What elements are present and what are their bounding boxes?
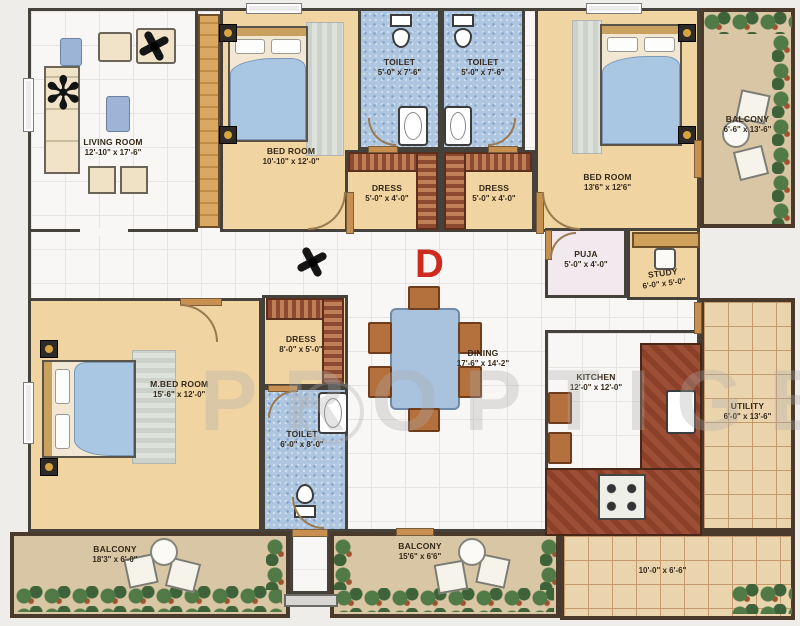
- room-dim: 5'-0" x 4'-0": [456, 194, 532, 204]
- decor-sculpture-icon: [134, 26, 174, 66]
- door-leaf: [346, 192, 354, 234]
- ceiling-fan-icon: [292, 242, 332, 282]
- door-leaf: [368, 146, 398, 153]
- room-name: BALCONY: [0, 544, 286, 555]
- balcony-door-leaf: [396, 528, 434, 536]
- watermark-logo-circle: [300, 380, 364, 444]
- washbasin-icon: [398, 106, 428, 146]
- door-leaf: [488, 146, 518, 153]
- stove-icon: [598, 474, 646, 520]
- door-opening: [80, 228, 128, 236]
- room-dim: 8'-0" x 5'-0": [257, 345, 345, 355]
- rug: [132, 350, 176, 464]
- terrace-label: 10'-0" x 6'-6": [534, 566, 791, 576]
- bedroom-top-right-label: BED ROOM 13'6" x 12'6": [518, 172, 697, 193]
- plant-icon: ✻: [44, 70, 83, 116]
- living-room-label: LIVING ROOM 12'-10" x 17'-6": [31, 137, 195, 158]
- dining-chair: [458, 366, 482, 398]
- wc-toilet-icon: [390, 14, 412, 46]
- wc-toilet-icon: [452, 14, 474, 46]
- plants: [704, 12, 792, 34]
- master-bedroom-label: M.BED ROOM 15'-6" x 12'-0": [99, 379, 259, 400]
- toilet-2-label: TOILET 5'-0" x 7'-6": [444, 57, 522, 78]
- nightstand: [40, 340, 58, 358]
- room-dim: 18'3" x 6'-0": [0, 555, 286, 565]
- nightstand: [219, 24, 237, 42]
- room-dim: 15'-6" x 12'-0": [99, 390, 259, 400]
- coffee-table: [88, 166, 116, 194]
- wardrobe: [198, 14, 220, 228]
- room-name: LIVING ROOM: [31, 137, 195, 148]
- window: [246, 3, 302, 14]
- nightstand: [219, 126, 237, 144]
- dining-chair: [408, 408, 440, 432]
- coffee-table: [120, 166, 148, 194]
- kitchen-label: KITCHEN 12'-0" x 12'-0": [548, 372, 644, 393]
- room-name: BALCONY: [284, 541, 556, 552]
- dining-label: DINING 17'-6" x 14'-2": [428, 348, 538, 369]
- room-dim: 5'-0" x 4'-0": [548, 260, 624, 270]
- patio-chair: [434, 560, 469, 595]
- bed: [600, 24, 682, 146]
- sink-icon: [666, 390, 696, 434]
- dining-chair: [408, 286, 440, 310]
- study-label: STUDY 6'-0" x 5'-0": [629, 264, 698, 293]
- floor-plan: LIVING ROOM 12'-10" x 17'-6" BED ROOM 10…: [0, 0, 800, 626]
- room-name: TOILET: [361, 57, 438, 68]
- toilet-1-label: TOILET 5'-0" x 7'-6": [361, 57, 438, 78]
- room-dim: 15'6" x 6'6": [284, 552, 556, 562]
- room-name: BED ROOM: [518, 172, 697, 183]
- dress-3-label: DRESS 8'-0" x 5'-0": [257, 334, 345, 355]
- room-dim: 12'-0" x 12'-0": [548, 383, 644, 393]
- entry-step: [284, 594, 338, 607]
- plan-letter: D: [415, 242, 444, 287]
- balcony-bottom-middle-label: BALCONY 15'6" x 6'6": [284, 541, 556, 562]
- nightstand: [40, 458, 58, 476]
- utility: UTILITY 6'-0" x 13'-6": [700, 298, 795, 532]
- bed: [42, 360, 136, 458]
- rug: [572, 20, 602, 154]
- window: [23, 382, 34, 444]
- room-dim: 5'-0" x 7'-6": [444, 68, 522, 78]
- room-dim: 10'-0" x 6'-6": [534, 566, 791, 576]
- washbasin-icon: [444, 106, 472, 146]
- room-dim: 10'-10" x 12'-0": [223, 157, 359, 167]
- utility-label: UTILITY 6'-0" x 13'-6": [704, 401, 791, 422]
- rug: [306, 22, 344, 156]
- room-name: DINING: [428, 348, 538, 359]
- room-name: TOILET: [444, 57, 522, 68]
- balcony-bottom-left-label: BALCONY 18'3" x 6'-0": [0, 544, 286, 565]
- balcony-top-right-label: BALCONY 6'-6" x 13'-6": [704, 114, 791, 135]
- armchair: [98, 32, 132, 62]
- main-entrance-door: [292, 529, 328, 537]
- room-dim: 6'-6" x 13'-6": [704, 125, 791, 135]
- plants: [16, 586, 282, 612]
- room-name: KITCHEN: [548, 372, 644, 383]
- room-name: UTILITY: [704, 401, 791, 412]
- room-dim: 12'-10" x 17'-6": [31, 148, 195, 158]
- utility-door-leaf: [694, 302, 702, 334]
- nightstand: [678, 24, 696, 42]
- study-desk: [632, 232, 700, 248]
- room-name: BED ROOM: [223, 146, 359, 157]
- bar-chair: [548, 392, 572, 424]
- bar-chair: [548, 432, 572, 464]
- plants: [732, 584, 792, 614]
- room-dim: 6'-0" x 13'-6": [704, 412, 791, 422]
- dining-chair: [368, 322, 392, 354]
- room-dim: 5'-0" x 7'-6": [361, 68, 438, 78]
- dining-chair: [368, 366, 392, 398]
- window: [23, 78, 34, 132]
- room-name: BALCONY: [704, 114, 791, 125]
- room-name: DRESS: [257, 334, 345, 345]
- bedroom-top-label: BED ROOM 10'-10" x 12'-0": [223, 146, 359, 167]
- window: [586, 3, 642, 14]
- room-name: M.BED ROOM: [99, 379, 259, 390]
- room-dim: 17'-6" x 14'-2": [428, 359, 538, 369]
- bed: [228, 26, 308, 142]
- balcony-door-leaf: [694, 140, 702, 178]
- side-table: [106, 96, 130, 132]
- accent-chair: [60, 38, 82, 66]
